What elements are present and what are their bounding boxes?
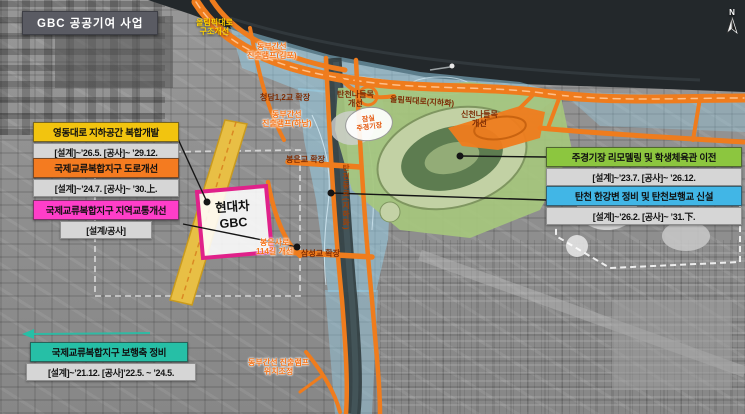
map-canvas: 올림픽대로구조개선 동부간선진출램프(김포) 청담1,2교 확장 탄천나들목개선… (0, 0, 745, 414)
callout-schedule: [설계]~’21.12. [공사]’22.5. ~ ’24.5. (26, 363, 196, 381)
building-block-apts (612, 300, 732, 390)
label-sincheon-interchange: 신천나들목개선 (461, 110, 498, 128)
callout-title: 탄천 한강변 정비 및 탄천보행교 신설 (546, 186, 742, 206)
label-bongeun-bridge: 봉은교 확장 (286, 155, 325, 164)
label-dongbu-ramp-relocation: 동부간선 진출램프위치조정 (248, 358, 309, 376)
label-dongbu-ramp-hanam: 동부간선진출램프(하남) (262, 110, 312, 128)
callout-schedule: [설계]~’23.7. [공사]~ ’26.12. (546, 168, 742, 186)
callout-tancheon-riverside: 탄천 한강변 정비 및 탄천보행교 신설 [설계]~’26.2. [공사]~ ’… (546, 186, 742, 225)
callout-title: 국제교류복합지구 보행축 정비 (30, 342, 188, 362)
callout-local-traffic: 국제교류복합지구 지역교통개선 [설계/공사] (33, 200, 179, 239)
label-tancheondong-ro: 탄천동로(지하화) (341, 150, 350, 245)
compass-label: N (729, 8, 735, 17)
label-bongeunsa-ro: 봉은사로114길 개선 (256, 238, 293, 256)
callout-yeongdong-underground: 영동대로 지하공간 복합개발 [설계]~’26.5. [공사]~ ’29.12. (33, 122, 179, 161)
north-arrow-icon (726, 17, 738, 35)
compass: N (726, 8, 738, 35)
callout-title: 국제교류복합지구 도로개선 (33, 158, 179, 178)
callout-schedule: [설계]~’24.7. [공사]~ ’30.上. (33, 179, 179, 197)
label-olympic-daero-structure: 올림픽대로구조개선 (196, 18, 233, 36)
callout-schedule: [설계/공사] (60, 221, 152, 239)
callout-stadium-remodel: 주경기장 리모델링 및 학생체육관 이전 [설계]~’23.7. [공사]~ ’… (546, 147, 742, 186)
label-cheongdam-bridges: 청담1,2교 확장 (260, 93, 310, 102)
callout-title: 국제교류복합지구 지역교통개선 (33, 200, 179, 220)
label-samseong-bridge: 삼성교 확장 (301, 249, 340, 258)
boat (450, 64, 455, 69)
callout-road-improvement: 국제교류복합지구 도로개선 [설계]~’24.7. [공사]~ ’30.上. (33, 158, 179, 197)
callout-title: 영동대로 지하공간 복합개발 (33, 122, 179, 142)
callout-pedestrian-axis: 국제교류복합지구 보행축 정비 [설계]~’21.12. [공사]’22.5. … (30, 342, 188, 381)
label-dongbu-ramp-gimpo: 동부간선진출램프(김포) (247, 42, 297, 60)
callout-schedule: [설계]~’26.2. [공사]~ ’31.下. (546, 207, 742, 225)
callout-title: 주경기장 리모델링 및 학생체육관 이전 (546, 147, 742, 167)
label-hyundai-gbc-site: 현대차GBC (199, 198, 267, 234)
label-tancheon-interchange: 탄천나들목개선 (337, 90, 374, 108)
pedestrian-axis (22, 329, 150, 339)
page-title: GBC 공공기여 사업 (22, 11, 158, 35)
